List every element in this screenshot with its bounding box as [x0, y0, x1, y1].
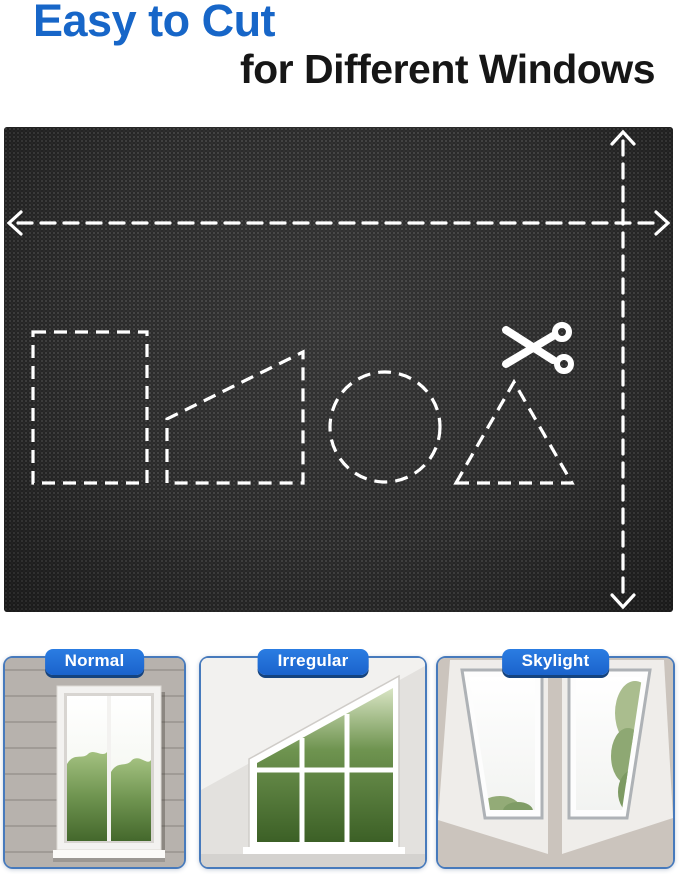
right-arrow-icon	[656, 212, 668, 234]
skylight-label-badge: Skylight	[502, 649, 610, 675]
product-infographic: Easy to Cut for Different Windows	[0, 0, 679, 874]
triangle-cutout	[456, 382, 572, 483]
normal-window-photo	[5, 658, 184, 867]
irregular-window-illustration	[201, 658, 425, 867]
window-type-card-skylight: Skylight	[436, 656, 675, 869]
normal-window-illustration	[5, 658, 184, 867]
trapezoid-cutout	[167, 352, 303, 483]
skylight-window-photo	[438, 658, 673, 867]
blackout-fabric-panel	[4, 127, 673, 612]
circle-cutout	[330, 372, 440, 482]
rectangle-cutout	[33, 332, 147, 483]
normal-label-badge: Normal	[45, 649, 145, 675]
irregular-label-badge: Irregular	[258, 649, 369, 675]
window-type-card-normal: Normal	[3, 656, 186, 869]
irregular-window-photo	[201, 658, 425, 867]
down-arrow-icon	[612, 595, 634, 607]
skylight-window-illustration	[438, 658, 673, 867]
scissors-icon	[506, 325, 571, 371]
cutting-guides	[4, 127, 673, 612]
headline-line2: for Different Windows	[240, 47, 655, 92]
window-type-card-irregular: Irregular	[199, 656, 427, 869]
headline-line1: Easy to Cut	[33, 0, 275, 46]
